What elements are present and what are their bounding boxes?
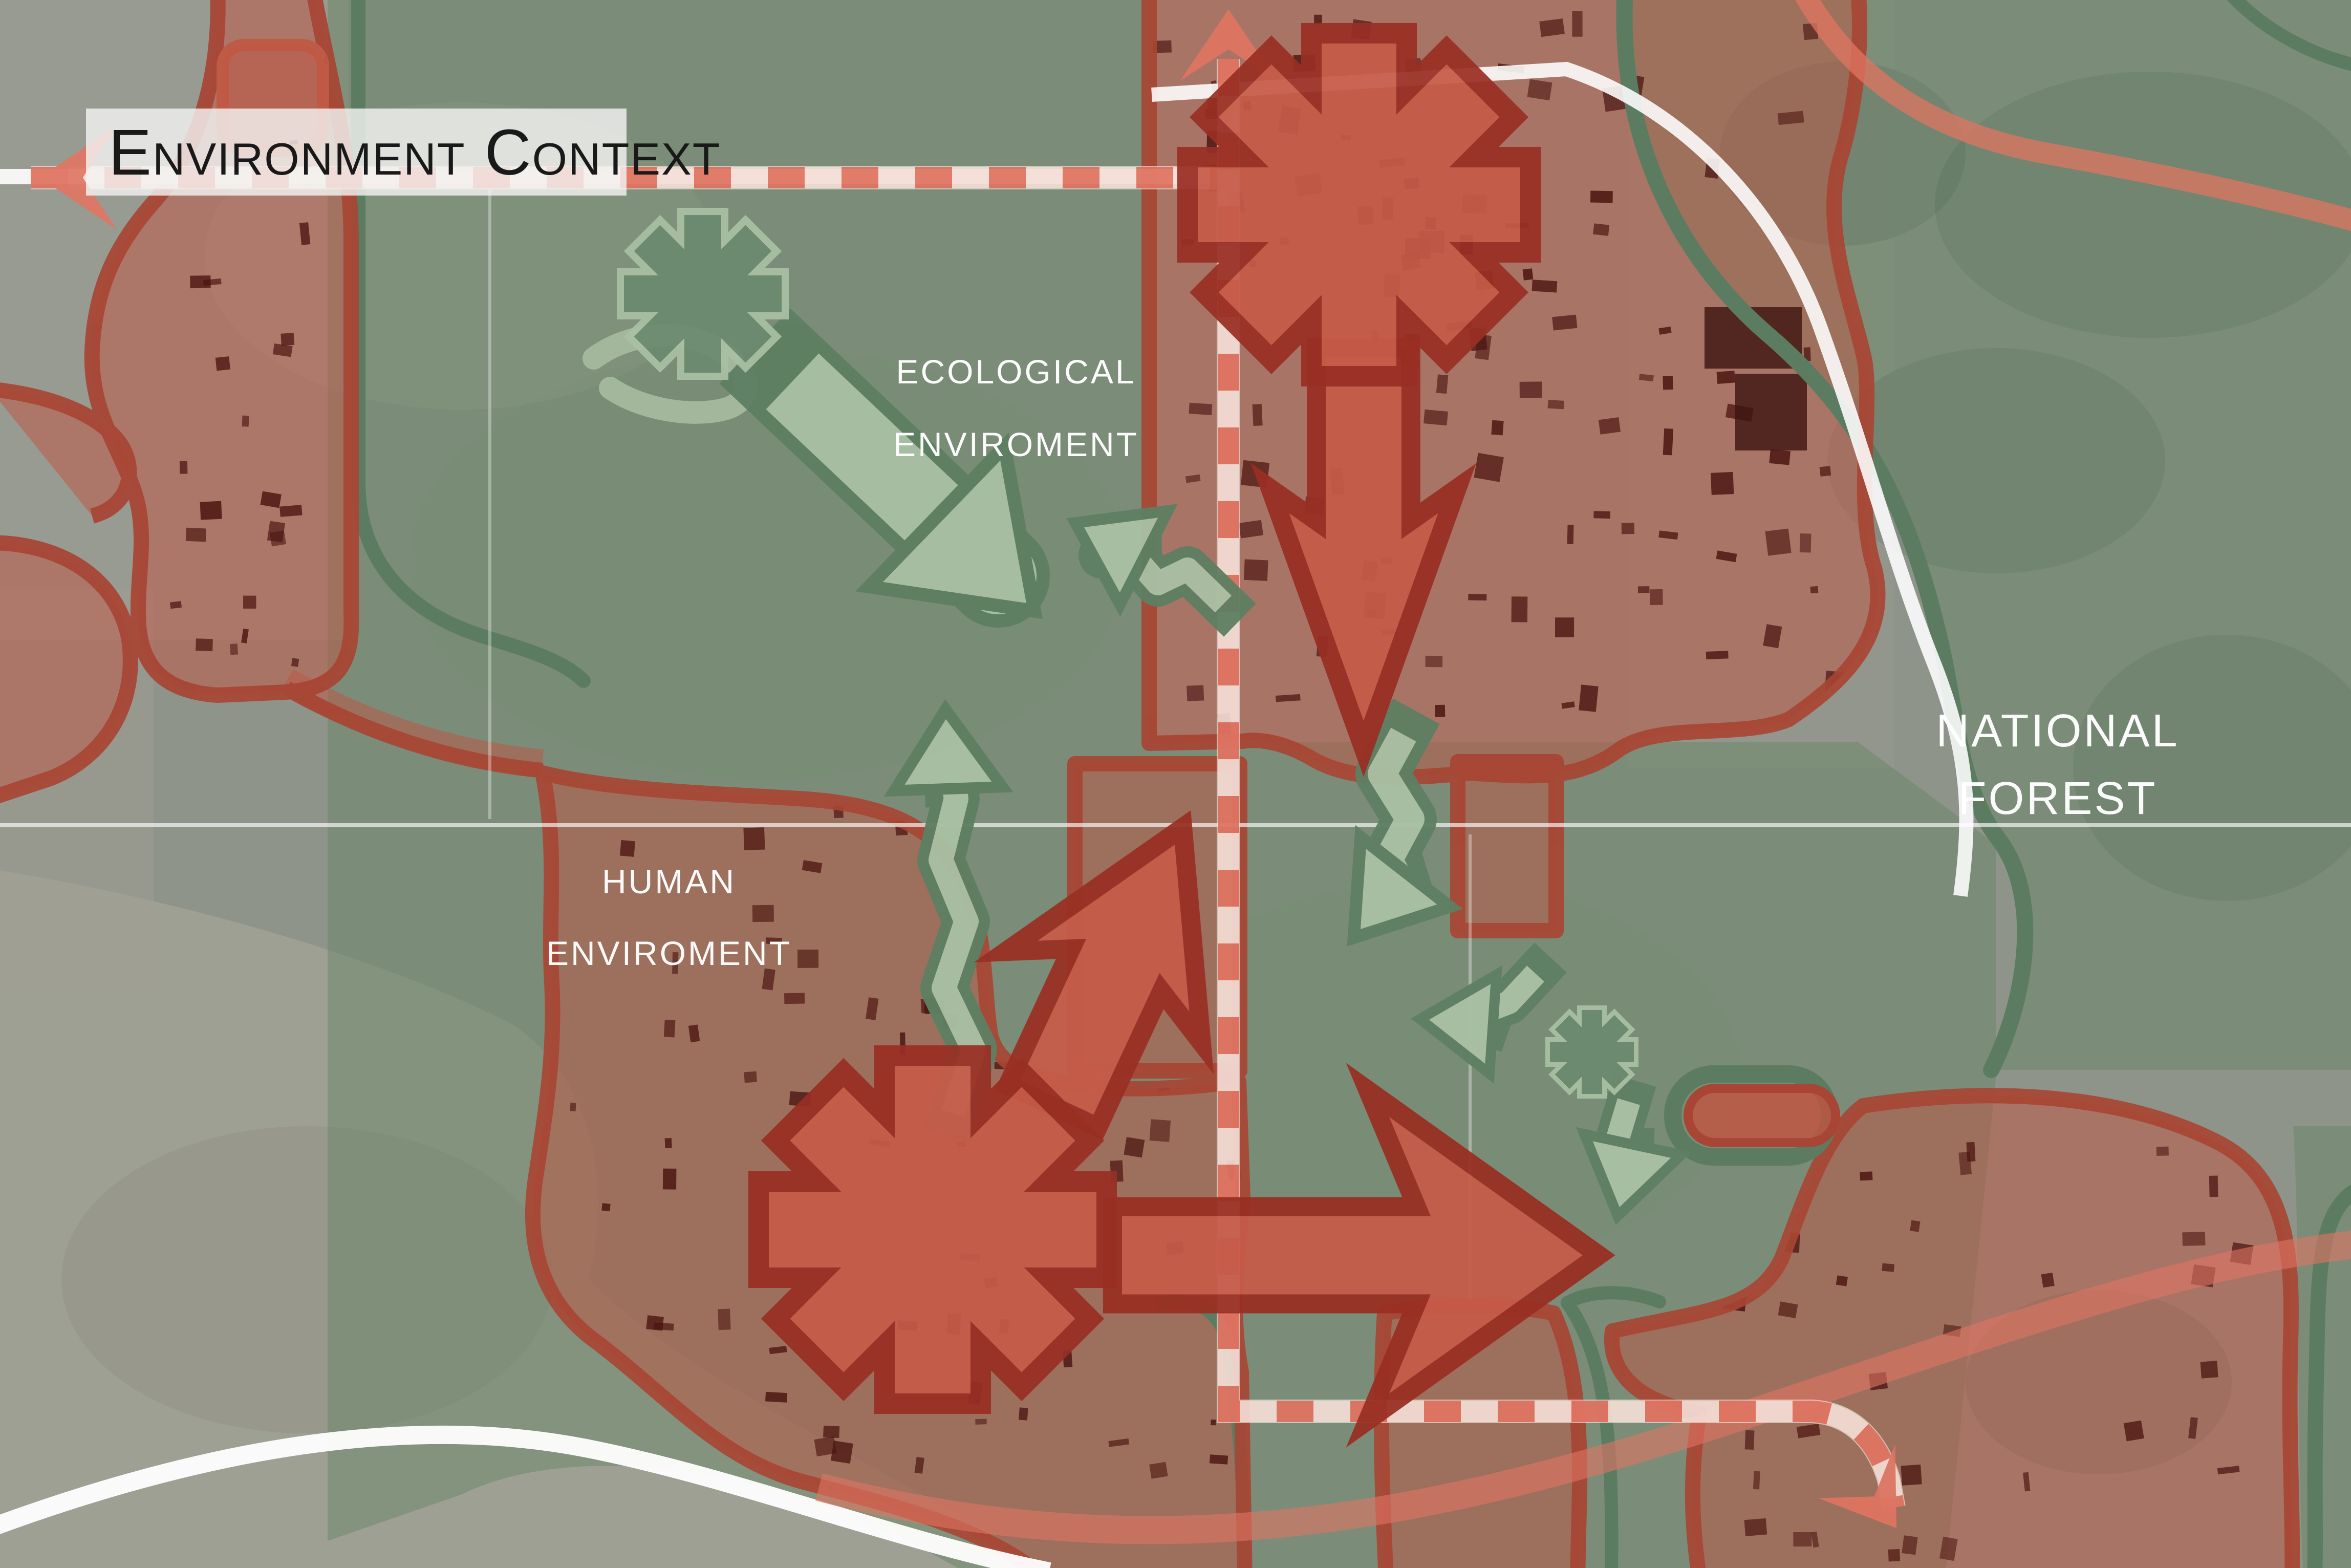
impact-asterisk-small-red-icon [769,1066,1096,1393]
environment-context-map: Environment Context ECOLOGICAL ENVIROMEN… [0,0,2351,1568]
eco-asterisk-small-green-icon [1550,1010,1634,1094]
map-title: Environment Context [109,115,721,189]
impact-asterisk-large-red-icon [1198,44,1520,366]
capsule-zone [1673,1074,1836,1157]
eco-asterisk-large-green-icon [624,215,782,373]
map-label-ecological: ECOLOGICAL ENVIROMENT [893,335,1139,481]
map-title-box: Environment Context [86,109,627,196]
map-label-human: HUMAN ENVIROMENT [546,846,792,989]
map-label-national_forest: NATIONAL FOREST [1936,697,2179,832]
